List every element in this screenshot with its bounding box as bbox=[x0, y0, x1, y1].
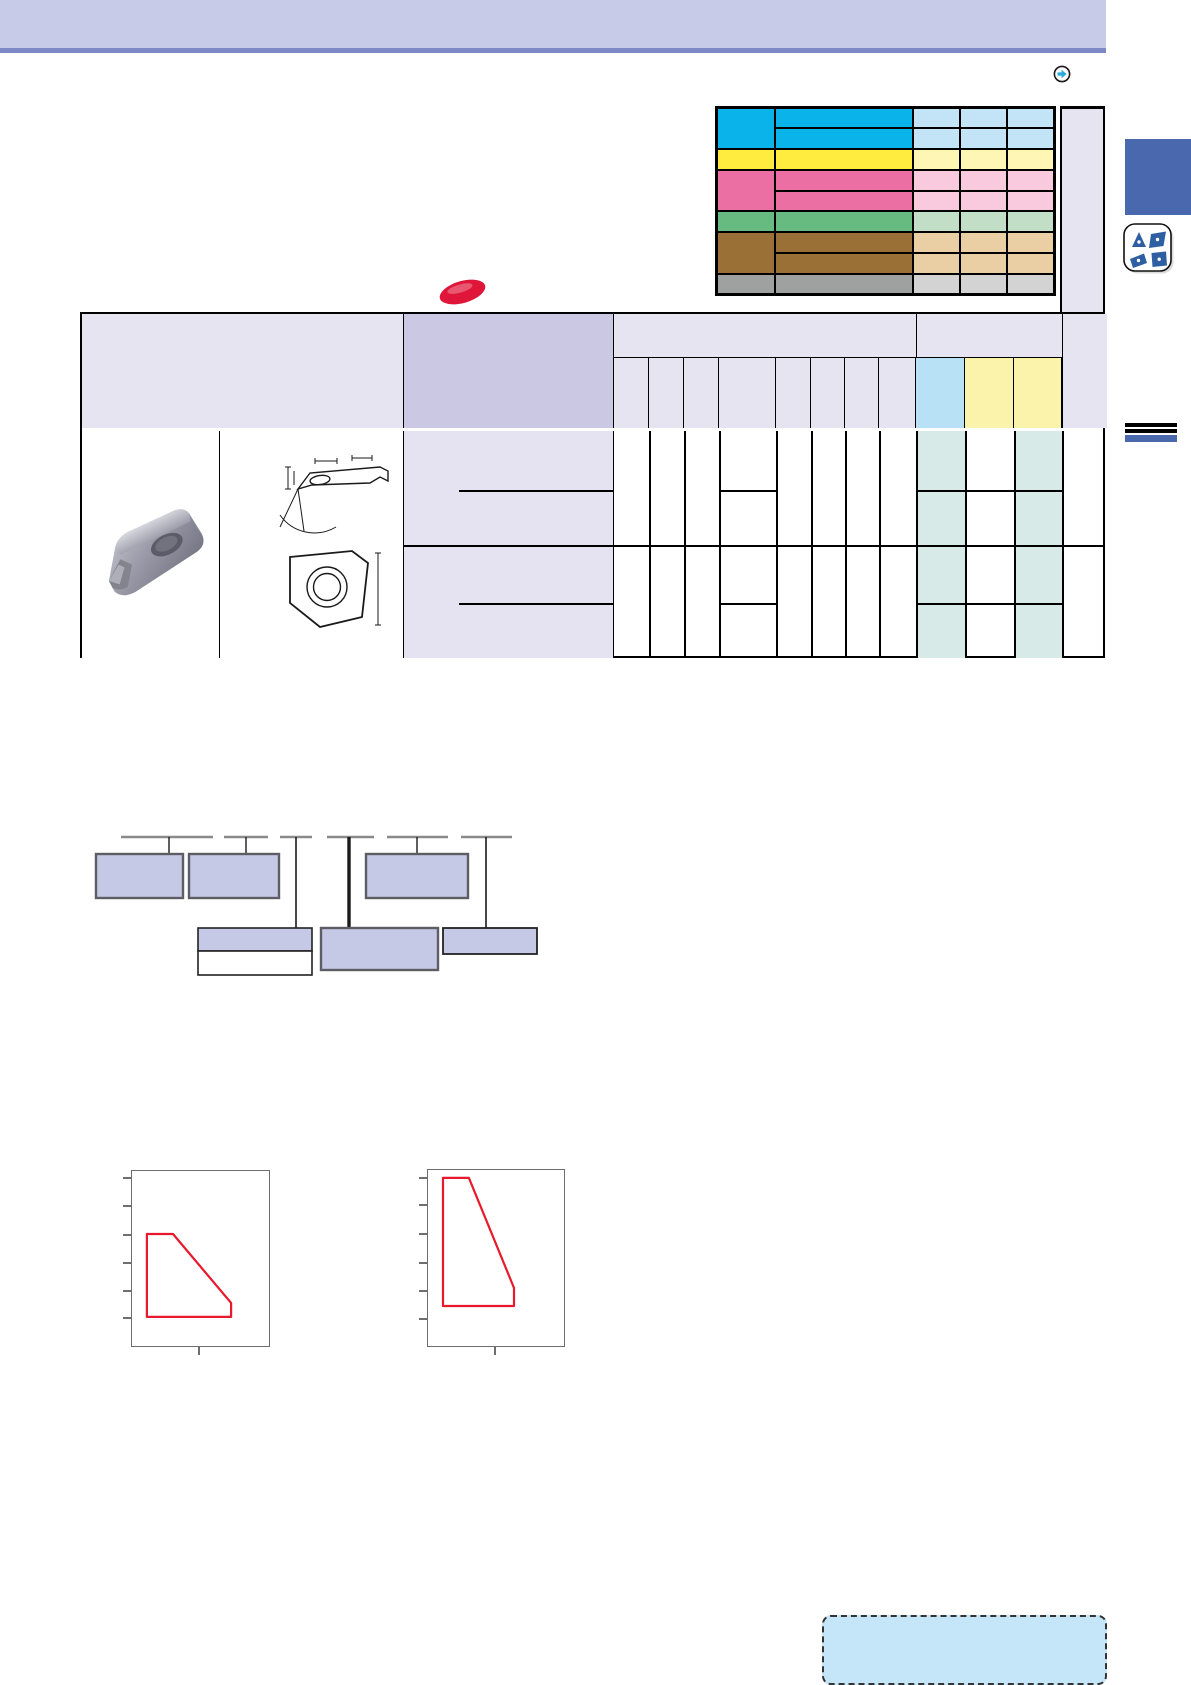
insert-photo bbox=[82, 431, 220, 658]
tree-box-4-bottom bbox=[198, 951, 312, 975]
y-axis-tick bbox=[419, 1177, 428, 1179]
subheader-dim-col-2 bbox=[649, 358, 684, 428]
y-axis-tick bbox=[419, 1262, 428, 1264]
y-axis-tick bbox=[419, 1318, 428, 1320]
legend-swatch-green bbox=[717, 211, 776, 232]
insert-photo-cell bbox=[82, 431, 220, 658]
subheader-dim-col-1 bbox=[614, 358, 649, 428]
legend-cell bbox=[1007, 232, 1055, 253]
range-envelope-plot bbox=[132, 1171, 269, 1346]
y-axis-tick bbox=[123, 1177, 132, 1179]
range-envelope-plot bbox=[428, 1170, 564, 1346]
legend-cell bbox=[913, 108, 960, 129]
legend-swatch-gray bbox=[717, 274, 776, 295]
subheader-dim-col-6 bbox=[811, 358, 845, 428]
triangle-hole bbox=[1137, 240, 1140, 243]
legend-label-cell bbox=[775, 191, 913, 212]
subheader-dim-col-7 bbox=[845, 358, 879, 428]
tree-box-4-top bbox=[198, 928, 312, 951]
tree-box-2 bbox=[189, 854, 279, 898]
subheader-dim-col-3 bbox=[684, 358, 719, 428]
stock-cols-subrow-line bbox=[916, 490, 1062, 492]
legend-cell bbox=[960, 128, 1007, 149]
next-page-arrow-icon[interactable] bbox=[1053, 65, 1071, 83]
legend-cell bbox=[960, 170, 1007, 191]
legend-label-cell bbox=[775, 170, 913, 191]
insert-drawing-cell bbox=[220, 431, 404, 658]
legend-row bbox=[717, 108, 1055, 129]
page-header-underline bbox=[0, 48, 1106, 53]
legend-cell bbox=[960, 253, 1007, 274]
insert-spec-table bbox=[80, 312, 1105, 658]
header-right-column bbox=[1062, 314, 1107, 428]
subheader-stock-blue bbox=[916, 358, 965, 428]
y-axis-tick bbox=[419, 1233, 428, 1235]
subheader-dim-col-4-wide bbox=[719, 358, 776, 428]
legend-cell bbox=[913, 128, 960, 149]
legend-swatch-brown bbox=[717, 232, 776, 274]
legend-label-cell bbox=[775, 108, 913, 129]
y-axis-tick bbox=[123, 1234, 132, 1236]
subheader-stock-yellow-2 bbox=[1014, 358, 1062, 428]
y-axis-tick bbox=[419, 1290, 428, 1292]
legend-cell bbox=[913, 274, 960, 295]
chapter-tab-square bbox=[1125, 139, 1191, 215]
legend-row bbox=[717, 211, 1055, 232]
legend-label-cell bbox=[775, 211, 913, 232]
legend-label-cell bbox=[775, 128, 913, 149]
legend-cell bbox=[1007, 211, 1055, 232]
header-stock-band bbox=[916, 314, 1062, 358]
insert-technical-drawing bbox=[220, 431, 404, 658]
legend-label-cell bbox=[775, 274, 913, 295]
dim-col-subrow-line bbox=[719, 490, 776, 492]
header-designation bbox=[404, 314, 614, 428]
legend-label-cell bbox=[775, 149, 913, 170]
legend-cell bbox=[1007, 108, 1055, 129]
legend-cell bbox=[960, 191, 1007, 212]
y-axis-tick bbox=[123, 1205, 132, 1207]
legend-cell bbox=[913, 232, 960, 253]
parallelogram-hole bbox=[1137, 259, 1140, 262]
y-axis-tick bbox=[123, 1262, 132, 1264]
legend-row bbox=[717, 170, 1055, 191]
dim-col-subrow-line bbox=[719, 603, 776, 605]
designation-underline-1 bbox=[459, 490, 614, 492]
subheader-dim-col-8 bbox=[879, 358, 916, 428]
x-axis-tick bbox=[494, 1346, 496, 1355]
header-insert-photo-drawing bbox=[82, 314, 404, 428]
designation-tree-diagram bbox=[75, 780, 545, 985]
legend-row bbox=[717, 149, 1055, 170]
legend-cell bbox=[913, 211, 960, 232]
legend-label-cell bbox=[775, 253, 913, 274]
legend-row bbox=[717, 274, 1055, 295]
note-box bbox=[822, 1615, 1107, 1685]
catalog-page: { "page": {"width": 1191, "height": 1662… bbox=[0, 0, 1191, 1662]
y-axis-tick bbox=[123, 1317, 132, 1319]
application-range-chart-right bbox=[427, 1169, 565, 1347]
tree-box-6 bbox=[443, 928, 537, 954]
header-dimensions-band bbox=[614, 314, 916, 358]
page-header-bar bbox=[0, 0, 1106, 48]
section-marker-rule bbox=[1125, 423, 1177, 427]
legend-cell bbox=[960, 274, 1007, 295]
x-axis-tick bbox=[198, 1346, 200, 1355]
subheader-dim-col-5 bbox=[776, 358, 811, 428]
new-item-badge bbox=[437, 275, 488, 309]
square-hole bbox=[1158, 258, 1161, 261]
legend-cell bbox=[1007, 128, 1055, 149]
tree-box-1 bbox=[96, 854, 183, 898]
legend-cell bbox=[1007, 149, 1055, 170]
insert-shapes-icon bbox=[1122, 222, 1175, 275]
legend-row bbox=[717, 232, 1055, 253]
rhombic-hole bbox=[1156, 238, 1159, 241]
designation-underline-2 bbox=[459, 603, 614, 605]
tree-box-5 bbox=[321, 928, 438, 970]
y-axis-tick bbox=[123, 1290, 132, 1292]
stock-cols-subrow-line bbox=[916, 603, 1062, 605]
legend-cell bbox=[1007, 170, 1055, 191]
y-axis-tick bbox=[419, 1204, 428, 1206]
legend-swatch-cyan bbox=[717, 108, 776, 150]
insert-photo-group bbox=[93, 502, 212, 600]
section-marker-bar bbox=[1125, 435, 1177, 442]
legend-cell bbox=[960, 149, 1007, 170]
legend-label-cell bbox=[775, 232, 913, 253]
legend-cell bbox=[913, 170, 960, 191]
grade-color-legend-table bbox=[715, 106, 1056, 296]
legend-cell bbox=[1007, 191, 1055, 212]
legend-cell bbox=[913, 253, 960, 274]
application-range-chart-left bbox=[131, 1170, 270, 1347]
legend-cell bbox=[913, 191, 960, 212]
tree-box-3 bbox=[366, 854, 468, 898]
legend-swatch-yellow bbox=[717, 149, 776, 170]
section-marker-rule bbox=[1125, 429, 1177, 433]
legend-cell bbox=[913, 149, 960, 170]
legend-cell bbox=[960, 232, 1007, 253]
legend-cell bbox=[960, 211, 1007, 232]
legend-cell bbox=[1007, 274, 1055, 295]
subheader-stock-yellow-1 bbox=[965, 358, 1014, 428]
legend-cell bbox=[960, 108, 1007, 129]
legend-swatch-pink bbox=[717, 170, 776, 212]
row-divider-mid bbox=[404, 545, 1103, 547]
legend-cell bbox=[1007, 253, 1055, 274]
